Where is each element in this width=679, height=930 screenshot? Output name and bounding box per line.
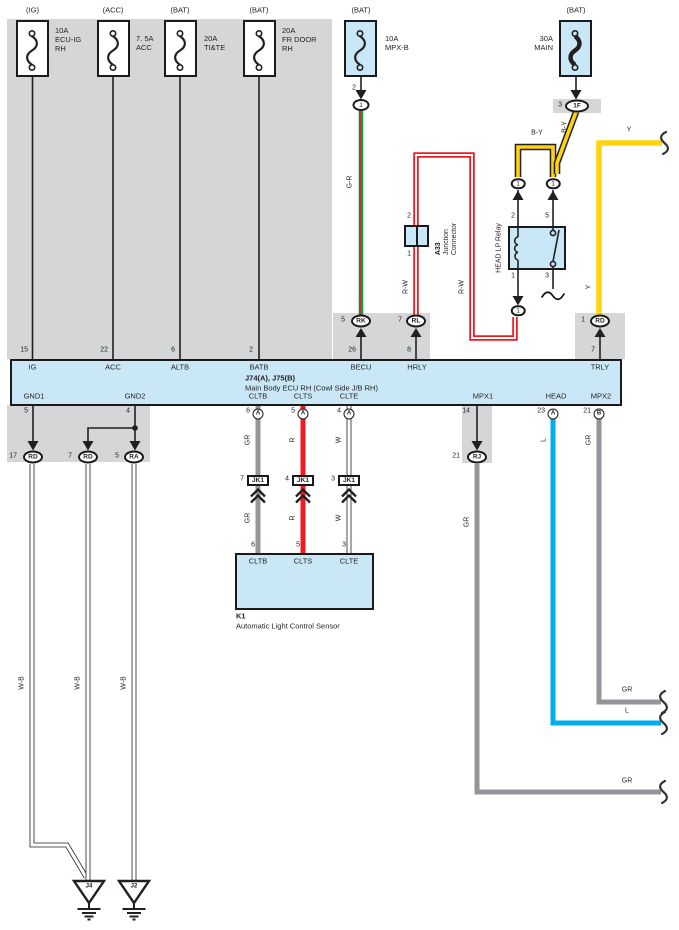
connector-jk1: JK1	[247, 475, 269, 486]
pin-number: 21	[440, 453, 460, 462]
wire-label: G-R	[347, 176, 356, 189]
ecu-pin-label: ALTB	[171, 364, 189, 373]
fuse-acc	[97, 20, 130, 77]
pin-letter-circle: A	[344, 408, 355, 419]
fuse-icon	[99, 22, 127, 74]
pin-number: 7	[224, 476, 244, 485]
pin-number: 23	[525, 408, 545, 417]
pin-number: 14	[450, 408, 470, 417]
a33-label: A33JunctionConnector	[435, 223, 459, 255]
pin-number: 1	[391, 251, 411, 260]
fuse-label: 30AMAIN	[508, 35, 553, 53]
fuse-tag: (ACC)	[103, 6, 124, 15]
wiring-layer	[0, 0, 679, 930]
ecu-pin-label: BECU	[351, 364, 372, 373]
connector-circle: 1	[511, 178, 526, 190]
connector-rj: RJ	[467, 451, 487, 464]
fusible-link-icon	[561, 22, 589, 74]
pin-number: 7	[52, 453, 72, 462]
wire-label: R	[290, 437, 299, 442]
ecu-pin-label: BATB	[249, 364, 268, 373]
wire-gr-mpx2	[599, 419, 661, 702]
pin-number: 7	[382, 317, 402, 326]
fuse-tag: (IG)	[26, 6, 39, 15]
connector-1f: 1F	[565, 100, 589, 113]
k1-pin-label: CLTE	[340, 558, 359, 567]
ecu-pin-label: HRLY	[407, 364, 426, 373]
wire-label: GR	[586, 435, 595, 446]
fuse-label: 20ATI&TE	[204, 35, 225, 53]
ground-label-j2: J2	[131, 883, 138, 892]
connector-ra: RA	[124, 451, 144, 464]
connector-jk1: JK1	[292, 475, 314, 486]
wire-gr-rj	[477, 464, 661, 792]
fuse-icon	[166, 22, 194, 74]
wire-label: W-B	[19, 676, 28, 689]
fuse-fr-door	[243, 20, 276, 77]
ecu-pin-label: CLTE	[340, 393, 359, 402]
fuse-tag: (BAT)	[249, 6, 268, 15]
wire-label: GR	[464, 517, 473, 528]
wire-label: Y	[586, 285, 595, 290]
pin-letter-circle: A	[548, 408, 559, 419]
fuse-icon	[18, 22, 46, 74]
pin-letter-circle: A	[298, 408, 309, 419]
ground-label-j4: J4	[86, 883, 93, 892]
wire-label: R-W	[403, 280, 412, 294]
fuse-icon	[346, 22, 374, 74]
relay-label: HEAD LP Relay	[496, 223, 505, 273]
connector-circle: 1	[353, 99, 370, 111]
ecu-pin-label: IG	[29, 364, 37, 373]
fuse-icon	[245, 22, 273, 74]
pin-number: 3	[326, 542, 346, 551]
wire-label: R	[290, 515, 299, 520]
pin-number: 22	[88, 347, 108, 356]
ecu-pin-label: HEAD	[546, 393, 567, 402]
pin-number: 2	[233, 347, 253, 356]
wire-y	[599, 143, 662, 316]
pin-number: 5	[99, 453, 119, 462]
wire-label: W-B	[121, 676, 130, 689]
pin-letter-circle: B	[594, 408, 605, 419]
a33-divider	[416, 227, 418, 245]
continuation-squiggles	[660, 132, 668, 803]
connector-rk: RK	[351, 315, 371, 328]
pin-number: 8	[391, 347, 411, 356]
fuse-mpx-b	[344, 20, 377, 77]
connector-rd-trly: RD	[590, 315, 610, 328]
pin-number: 5	[325, 317, 345, 326]
ecu-pin-label: MPX2	[591, 393, 611, 402]
fuse-label: 10AMPX-B	[385, 35, 409, 53]
connector-jk1: JK1	[338, 475, 360, 486]
ecu-pin-label: TRLY	[591, 364, 610, 373]
fuse-label: 7. 5AACC	[136, 35, 154, 53]
ecu-pin-label: GND1	[24, 393, 45, 402]
wire-label: W	[336, 437, 345, 444]
pin-number: 3	[315, 476, 335, 485]
fuse-tag: (BAT)	[351, 6, 370, 15]
pin-number: 3	[529, 273, 549, 282]
ecu-pin-label: CLTB	[249, 393, 268, 402]
fuse-label: 20AFR DOORRH	[282, 27, 317, 53]
wire-label: GR	[245, 513, 254, 524]
wire-label: GR	[622, 687, 633, 696]
relay-pin3-continuation	[542, 292, 564, 299]
fuse-label: 10AECU-IGRH	[55, 27, 81, 53]
connector-circle: 1	[546, 178, 561, 190]
pin-number: 2	[336, 85, 356, 94]
wire-label: GR	[622, 778, 633, 787]
pin-number: 4	[110, 408, 130, 417]
pin-number: 5	[8, 408, 28, 417]
pin-number: 6	[235, 542, 255, 551]
wire-label: B-Y	[531, 130, 543, 139]
ecu-pin-label: GND2	[125, 393, 146, 402]
pin-number: 5	[529, 213, 549, 222]
k1-pin-label: CLTS	[294, 558, 313, 567]
k1-pin-label: CLTB	[249, 558, 268, 567]
connector-rd-gnd1: RD	[23, 451, 43, 464]
pin-number: 7	[575, 347, 595, 356]
ecu-pin-label: MPX1	[473, 393, 493, 402]
pin-number: 2	[495, 213, 515, 222]
wire-label: W	[336, 515, 345, 522]
wire-w-b-1	[32, 464, 86, 877]
fuse-ti-te	[164, 20, 197, 77]
pin-number: 21	[571, 408, 591, 417]
fuse-ecu-ig	[16, 20, 49, 77]
head-lp-relay	[508, 226, 566, 270]
connector-rd-gnd2: RD	[78, 451, 98, 464]
pin-letter-circle: A	[253, 408, 264, 419]
fuse-tag: (BAT)	[566, 6, 585, 15]
wiring-diagram: (IG) (ACC) (BAT) (BAT) (BAT) (BAT) 10AEC…	[0, 0, 679, 930]
pin-number: 15	[8, 347, 28, 356]
junction-dot	[132, 425, 138, 431]
pin-number: 3	[542, 102, 562, 111]
pin-number: 1	[565, 317, 585, 326]
wire-label: L	[625, 708, 629, 717]
connector-circle: 1	[511, 305, 526, 317]
wire-label: R-W	[459, 280, 468, 294]
wire-label: GR	[245, 435, 254, 446]
fuse-tag: (BAT)	[170, 6, 189, 15]
ecu-pin-label: CLTS	[294, 393, 313, 402]
pin-number: 2	[391, 213, 411, 222]
k1-name: Automatic Light Control Sensor	[236, 622, 340, 631]
pin-number: 6	[230, 408, 250, 417]
pin-number: 5	[280, 542, 300, 551]
connector-rl: RL	[406, 315, 426, 328]
wire-l-head	[553, 419, 661, 723]
wire-label: Y	[627, 127, 632, 136]
pin-number: 6	[155, 347, 175, 356]
pin-number: 26	[336, 347, 356, 356]
wire-label: W-B	[75, 676, 84, 689]
a33-junction-connector	[404, 225, 429, 247]
fuse-main	[559, 20, 592, 77]
pin-number: 4	[321, 408, 341, 417]
wire-label: B-Y	[562, 121, 571, 133]
wire-label: L	[541, 438, 550, 442]
pin-number: 5	[275, 408, 295, 417]
pin-number: 17	[0, 453, 17, 462]
pin-number: 1	[495, 273, 515, 282]
pin-number: 4	[269, 476, 289, 485]
k1-id: K1	[236, 613, 246, 622]
ecu-pin-label: ACC	[105, 364, 121, 373]
ecu-title: J74(A), J75(B)	[245, 375, 295, 384]
wire-b-y-bridge	[518, 147, 553, 177]
relay-internals-icon	[510, 228, 564, 268]
